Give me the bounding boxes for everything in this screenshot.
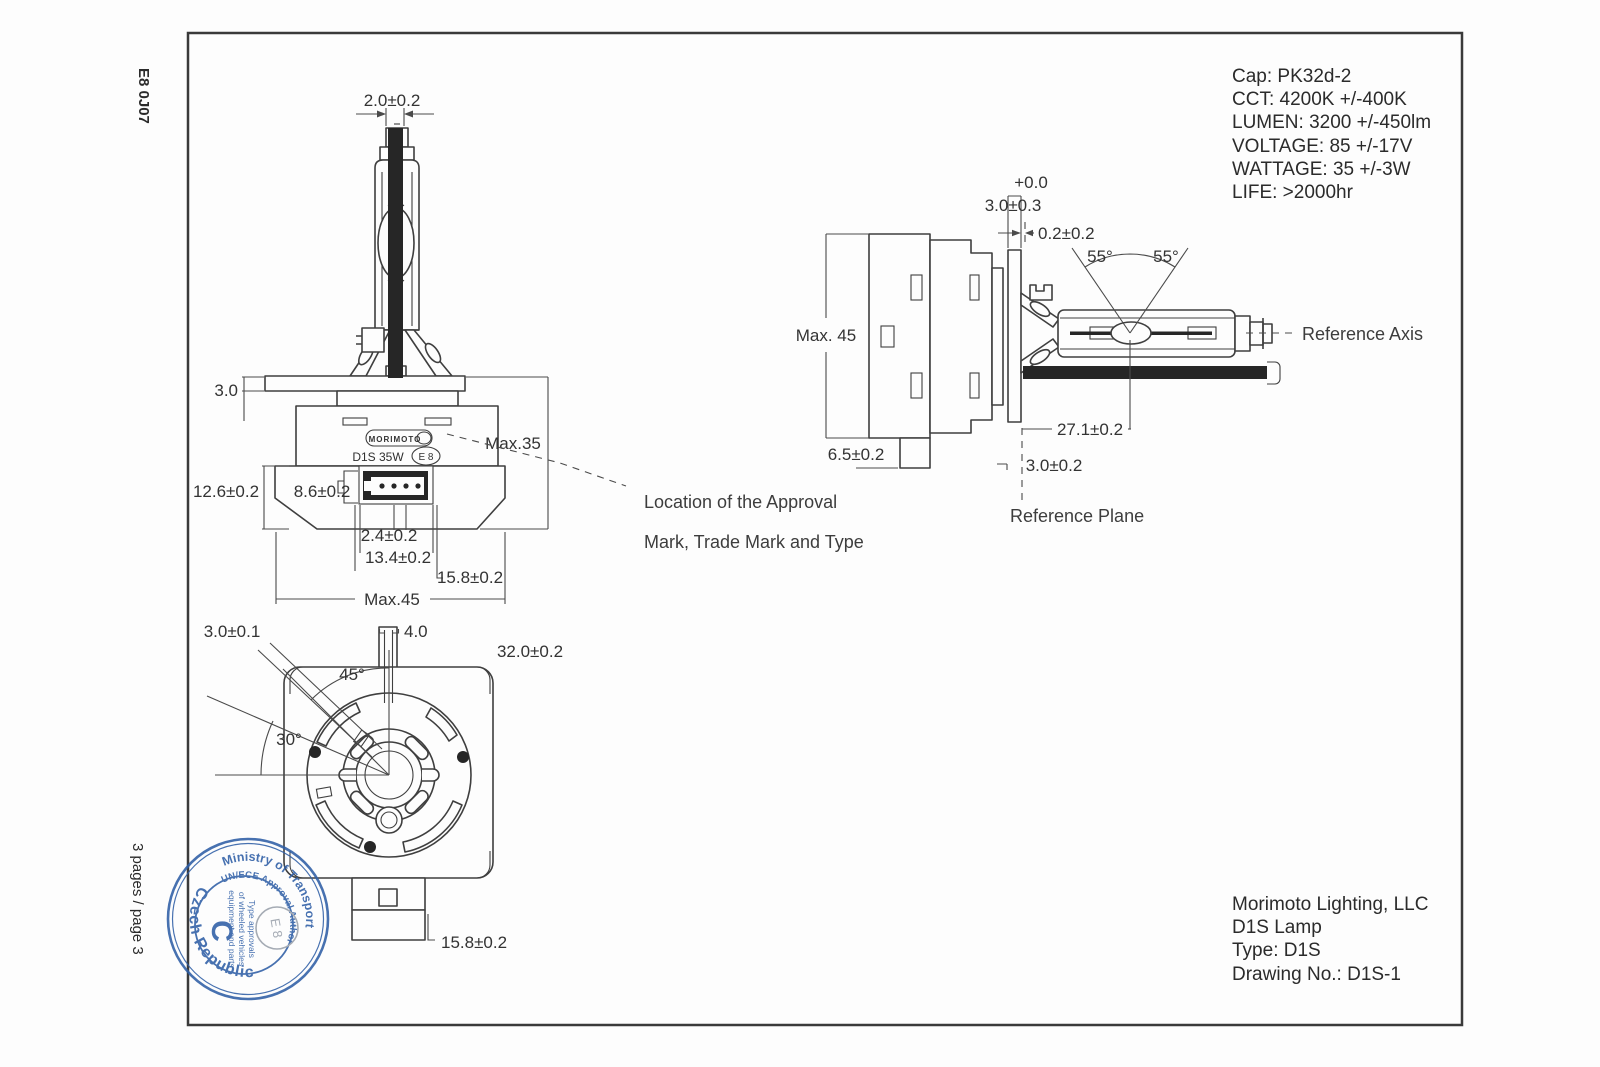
stamp-scope-text: Type approvals of wheeled vehicles equip… xyxy=(227,890,257,968)
stamp-scope-line3: equipment and parts xyxy=(227,890,237,968)
reference-axis-label: Reference Axis xyxy=(1302,324,1423,344)
dim-step-height: 8.6±0.2 xyxy=(294,482,351,501)
dim-arc-to-plane: 27.1±0.2 xyxy=(1057,420,1123,439)
dim-body-height: 12.6±0.2 xyxy=(193,482,259,501)
dim-angle-left: 55° xyxy=(1087,247,1113,266)
dim-body-width: 32.0±0.2 xyxy=(497,642,563,661)
dim-angle-right: 55° xyxy=(1153,247,1179,266)
dim-angle-side: 30° xyxy=(276,730,302,749)
dim-tab-width: 15.8±0.2 xyxy=(441,933,507,952)
product-name: D1S Lamp xyxy=(1232,916,1428,939)
dim-upper-tol: +0.0 xyxy=(1014,173,1048,192)
front-view-drawing xyxy=(265,124,505,529)
svg-text:UN/ECE Approval Authority: UN/ECE Approval Authority xyxy=(0,0,298,945)
dim-flange-thickness: 3.0 xyxy=(214,381,238,400)
frame-code-label: E8 0J07 xyxy=(135,68,152,124)
dim-flange-width: 3.0±0.3 xyxy=(985,196,1042,215)
dim-connector-width: 13.4±0.2 xyxy=(365,548,431,567)
spec-wattage: WATTAGE: 35 +/-3W xyxy=(1232,158,1431,181)
approval-callout-line1: Location of the Approval xyxy=(644,492,837,513)
dim-plane-offset: 3.0±0.2 xyxy=(1026,456,1083,475)
dim-slot-width: 4.0 xyxy=(404,622,428,641)
dim-side-height-max: Max. 45 xyxy=(796,326,856,345)
spec-life: LIFE: >2000hr xyxy=(1232,181,1431,204)
dim-gap: 0.2±0.2 xyxy=(1038,224,1095,243)
stamp-authority: UN/ECE Approval Authority xyxy=(0,0,298,945)
spec-list: Cap: PK32d-2 CCT: 4200K +/-400K LUMEN: 3… xyxy=(1232,65,1431,204)
spec-voltage: VOLTAGE: 85 +/-17V xyxy=(1232,135,1431,158)
frame-pages-label: 3 pages / page 3 xyxy=(129,843,146,955)
drawing-number: Drawing No.: D1S-1 xyxy=(1232,963,1428,986)
title-block: Morimoto Lighting, LLC D1S Lamp Type: D1… xyxy=(1232,893,1428,986)
e-mark-front: E 8 xyxy=(418,452,433,463)
company-name: Morimoto Lighting, LLC xyxy=(1232,893,1428,916)
dim-tip-width: 2.0±0.2 xyxy=(364,91,421,110)
logo-marking: MORIMOTO xyxy=(369,435,422,444)
spec-lumen: LUMEN: 3200 +/-450lm xyxy=(1232,111,1431,134)
lamp-type: Type: D1S xyxy=(1232,939,1428,962)
dim-angle-top: 45° xyxy=(339,665,365,684)
dim-key-width: 3.0±0.1 xyxy=(204,622,261,641)
spec-cct: CCT: 4200K +/-400K xyxy=(1232,88,1431,111)
dim-tab-height: 6.5±0.2 xyxy=(828,445,885,464)
stamp-e-badge: E 8 xyxy=(267,917,285,939)
reference-plane-label: Reference Plane xyxy=(1010,506,1144,526)
approval-callout-line2: Mark, Trade Mark and Type xyxy=(644,532,864,553)
dim-width-max: Max.45 xyxy=(364,590,420,609)
spec-cap: Cap: PK32d-2 xyxy=(1232,65,1431,88)
dim-connector-outer: 15.8±0.2 xyxy=(437,568,503,587)
dim-height-max: Max.35 xyxy=(485,434,541,453)
stamp-scope-line2: of wheeled vehicles xyxy=(237,892,247,966)
drawing-sheet: 2.0±0.2 3.0 Max.35 12.6±0.2 8.6±0.2 2.4±… xyxy=(0,0,1600,1067)
type-marking: D1S 35W xyxy=(352,450,404,464)
dim-pin-pitch: 2.4±0.2 xyxy=(361,526,418,545)
